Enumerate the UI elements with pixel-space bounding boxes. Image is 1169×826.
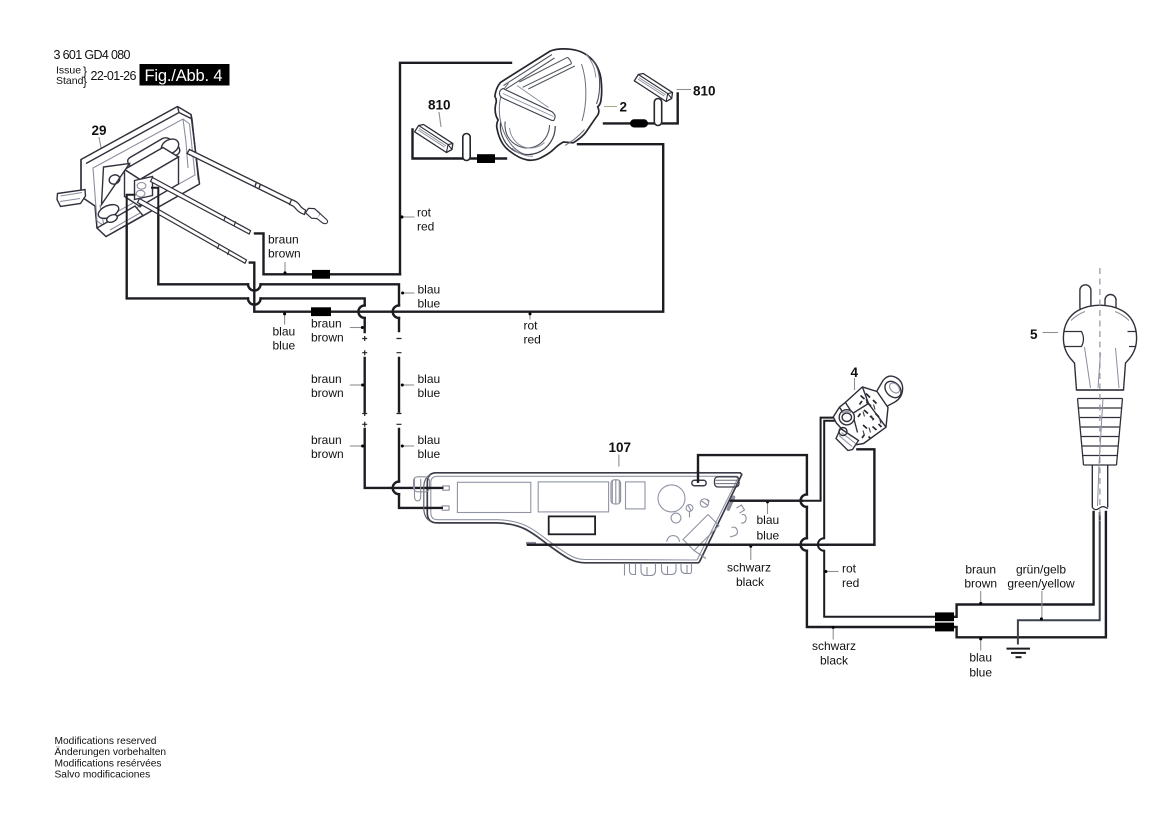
svg-text:810: 810 [693,84,716,99]
svg-text:green/yellow: green/yellow [1007,577,1075,591]
svg-text:brown: brown [311,386,344,400]
svg-text:blau: blau [418,433,441,447]
svg-text:Stand: Stand [56,75,84,87]
svg-text:red: red [842,576,859,590]
svg-text:schwarz: schwarz [727,561,771,575]
svg-text:blue: blue [757,529,780,543]
svg-text:blue: blue [418,447,441,461]
svg-text:blau: blau [969,651,992,665]
svg-text:blue: blue [418,297,441,311]
svg-text:grün/gelb: grün/gelb [1016,563,1066,577]
svg-text:braun: braun [311,433,342,447]
svg-text:red: red [417,220,434,234]
svg-text:Änderungen vorbehalten: Änderungen vorbehalten [55,746,167,758]
svg-text:blau: blau [418,283,441,297]
svg-text:brown: brown [311,331,344,345]
svg-text:braun: braun [268,233,299,247]
svg-text:blau: blau [418,372,441,386]
svg-text:5: 5 [1030,327,1038,342]
svg-text:blue: blue [273,339,296,353]
svg-text:blue: blue [418,386,441,400]
svg-text:brown: brown [311,447,344,461]
svg-text:brown: brown [964,577,997,591]
svg-text:4: 4 [851,365,859,380]
svg-text:107: 107 [609,440,632,455]
svg-text:blau: blau [757,513,780,527]
svg-text:blau: blau [273,325,296,339]
svg-text:29: 29 [92,123,107,138]
svg-text:22-01-26: 22-01-26 [91,69,137,83]
svg-text:schwarz: schwarz [812,639,856,653]
svg-text:rot: rot [524,319,539,333]
svg-text:brown: brown [268,247,301,261]
svg-text:2: 2 [620,100,628,115]
svg-text:Salvo modificaciones: Salvo modificaciones [55,770,151,781]
svg-text:blue: blue [969,666,992,680]
svg-text:black: black [820,654,849,668]
svg-text:Fig./Abb. 4: Fig./Abb. 4 [145,67,223,85]
svg-text:braun: braun [311,317,342,331]
svg-text:Modifications resérvées: Modifications resérvées [55,758,162,769]
svg-text:3 601 GD4 080: 3 601 GD4 080 [54,48,131,62]
svg-text:}: } [83,75,87,89]
svg-text:Modifications reserved: Modifications reserved [55,736,157,747]
svg-text:rot: rot [842,562,857,576]
svg-text:810: 810 [428,98,451,113]
svg-text:braun: braun [311,372,342,386]
svg-text:black: black [736,575,765,589]
svg-text:red: red [524,333,541,347]
svg-text:rot: rot [417,206,432,220]
svg-text:braun: braun [965,563,996,577]
